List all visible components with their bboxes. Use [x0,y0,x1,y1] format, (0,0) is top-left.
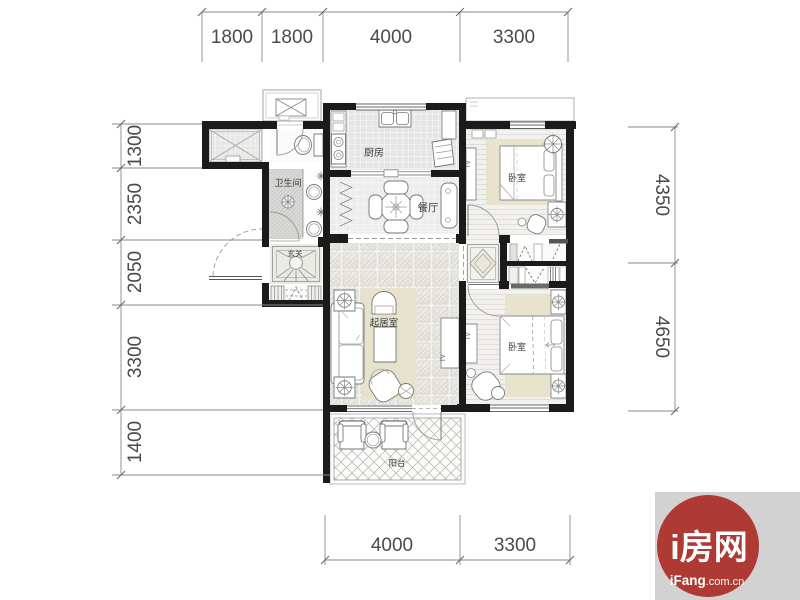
svg-text:4000: 4000 [371,535,413,556]
svg-text:起居室: 起居室 [370,317,399,329]
svg-text:餐厅: 餐厅 [418,201,439,214]
svg-text:卧室: 卧室 [508,341,526,352]
svg-text:TV: TV [441,354,447,362]
svg-text:2050: 2050 [125,251,146,293]
svg-text:4350: 4350 [651,174,672,216]
svg-text:卧室: 卧室 [508,172,526,183]
svg-text:4650: 4650 [651,316,672,358]
svg-text:3300: 3300 [494,535,536,556]
svg-text:厨房: 厨房 [364,146,384,159]
svg-text:阳台: 阳台 [388,458,405,468]
svg-text:i房网: i房网 [670,529,747,567]
svg-text:卫生间: 卫生间 [274,177,301,188]
svg-text:1300: 1300 [125,125,146,167]
svg-text:iFang.com.cn: iFang.com.cn [670,573,745,588]
svg-text:1800: 1800 [211,27,253,48]
svg-text:1400: 1400 [125,421,146,463]
svg-text:1800: 1800 [271,27,313,48]
svg-text:TV: TV [466,332,472,340]
svg-text:3300: 3300 [125,336,146,378]
svg-text:TV: TV [466,160,472,168]
svg-text:玄关: 玄关 [288,248,303,258]
svg-text:2350: 2350 [125,183,146,225]
svg-text:3300: 3300 [493,27,535,48]
svg-text:4000: 4000 [370,27,412,48]
